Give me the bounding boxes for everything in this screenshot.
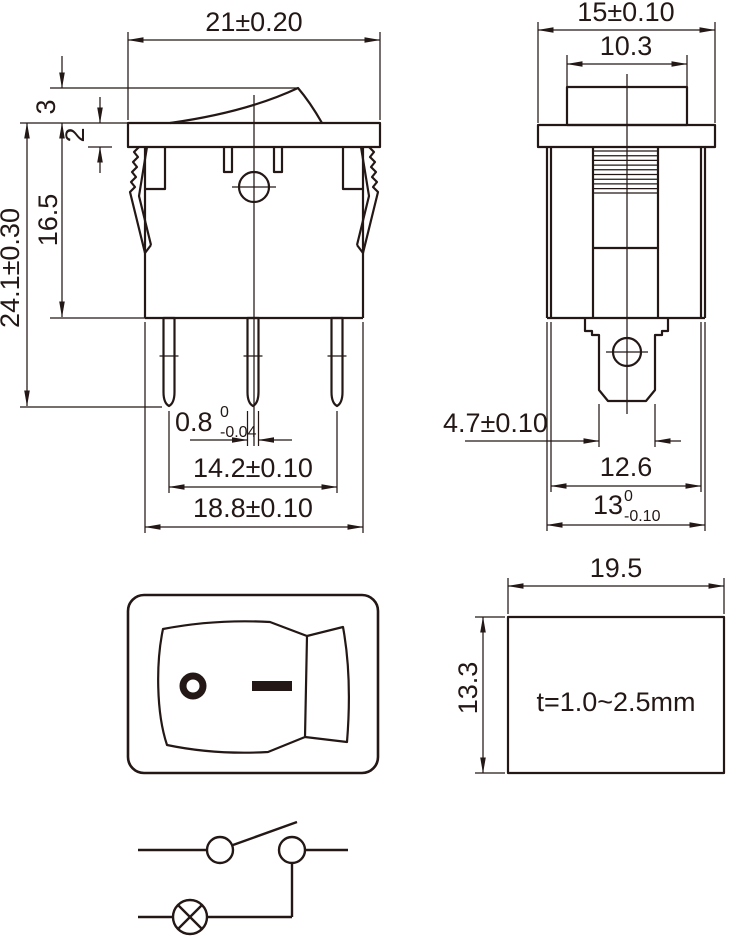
dim-body-width: 18.8±0.10 bbox=[193, 493, 313, 523]
dim-flange-depth: 15±0.10 bbox=[577, 0, 674, 27]
panel-cutout-view: 19.5 13.3 t=1.0~2.5mm bbox=[453, 553, 724, 773]
terminal-pin bbox=[248, 318, 259, 406]
off-symbol-icon bbox=[183, 676, 203, 696]
dim-flange-thickness: 2 bbox=[60, 127, 90, 142]
dim-overall-height: 24.1±0.30 bbox=[0, 208, 25, 328]
terminal-pins bbox=[160, 318, 347, 406]
dim-mounting-depth: 13 bbox=[593, 490, 623, 520]
dim-rocker-height: 3 bbox=[31, 99, 61, 114]
contact-icon bbox=[279, 837, 305, 863]
dim-body-depth: 12.6 bbox=[600, 452, 653, 482]
dim-overall-width: 21±0.20 bbox=[205, 7, 302, 37]
snap-clip-left bbox=[130, 147, 151, 253]
dim-cutout-height: 13.3 bbox=[453, 662, 483, 715]
dim-terminal-width: 4.7±0.10 bbox=[443, 408, 548, 438]
dim-rocker-depth: 10.3 bbox=[600, 31, 653, 61]
top-view bbox=[128, 595, 378, 773]
tab-right bbox=[274, 147, 282, 172]
snap-clip-right bbox=[357, 147, 378, 253]
dim-mounting-depth-tol-lower: -0.10 bbox=[624, 508, 661, 525]
circuit-diagram bbox=[138, 822, 348, 934]
side-dimensions: 15±0.10 10.3 4.7±0.10 12.6 13 0 -0.10 bbox=[443, 0, 715, 531]
dim-terminal-thickness-tol-lower: -0.04 bbox=[220, 424, 257, 441]
step-right bbox=[343, 147, 363, 189]
front-view: 21±0.20 3 2 16.5 24.1±0.30 0.8 bbox=[0, 7, 380, 533]
dim-body-height: 16.5 bbox=[33, 194, 63, 247]
side-view: 15±0.10 10.3 4.7±0.10 12.6 13 0 -0.10 bbox=[443, 0, 715, 531]
rocker-switch-dimensional-drawing: 21±0.20 3 2 16.5 24.1±0.30 0.8 bbox=[0, 0, 742, 936]
contact-icon bbox=[207, 837, 233, 863]
drawing-sheet: 21±0.20 3 2 16.5 24.1±0.30 0.8 bbox=[0, 0, 742, 936]
lamp-icon bbox=[173, 900, 207, 934]
terminal-pin bbox=[332, 318, 343, 406]
ribbed-section bbox=[593, 151, 658, 193]
side-part-outline bbox=[538, 74, 715, 414]
dim-terminal-pitch: 14.2±0.10 bbox=[193, 453, 313, 483]
terminal-pin bbox=[164, 318, 175, 406]
dim-terminal-thickness-tol-upper: 0 bbox=[220, 404, 229, 421]
dim-mounting-depth-tol-upper: 0 bbox=[624, 488, 633, 505]
tab-left bbox=[224, 147, 232, 172]
panel-thickness-note: t=1.0~2.5mm bbox=[536, 687, 695, 717]
on-symbol-icon bbox=[252, 681, 292, 691]
step-left bbox=[145, 147, 165, 189]
dim-terminal-thickness: 0.8 bbox=[175, 407, 213, 437]
front-dimensions: 21±0.20 3 2 16.5 24.1±0.30 0.8 bbox=[0, 7, 380, 533]
dim-cutout-width: 19.5 bbox=[590, 553, 643, 583]
front-part-outline bbox=[128, 88, 380, 446]
rocker-profile bbox=[170, 88, 322, 123]
